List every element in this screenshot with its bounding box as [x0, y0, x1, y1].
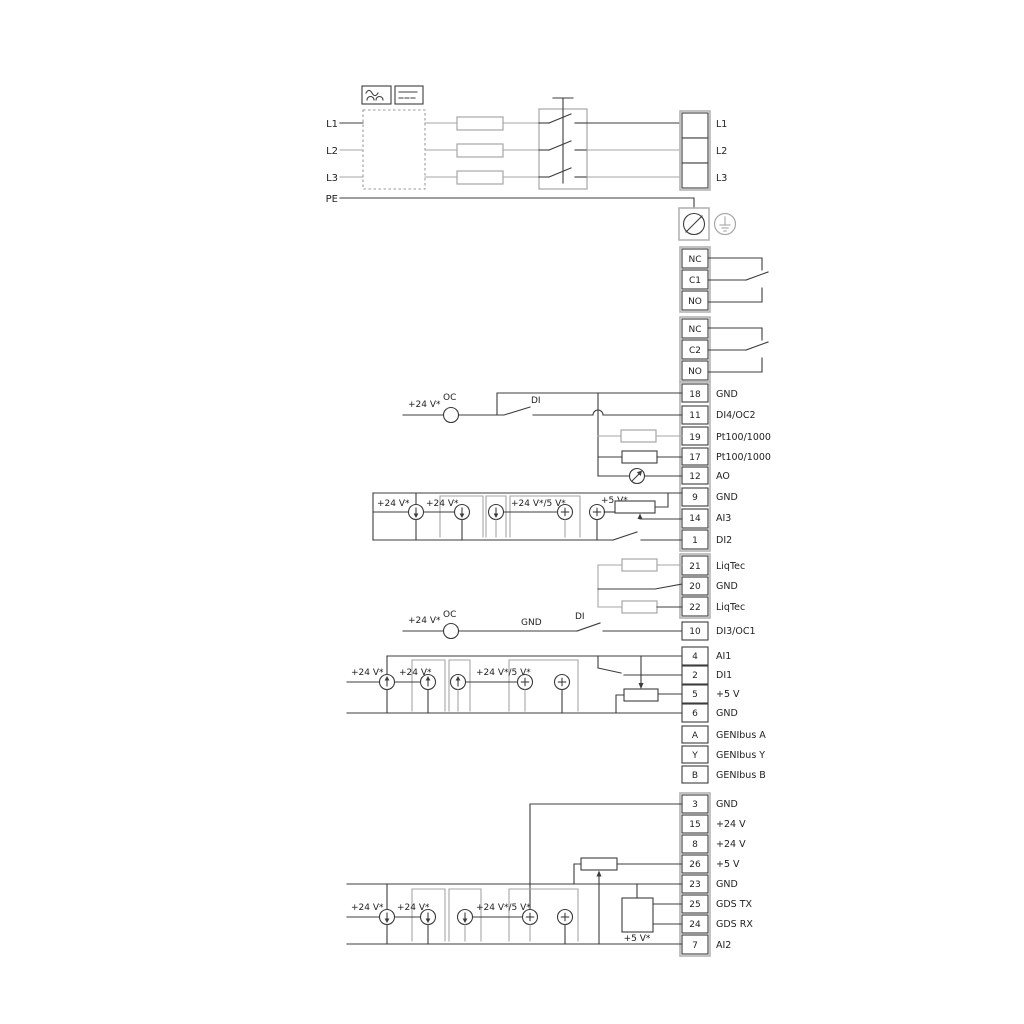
terminal-9: 9	[692, 493, 698, 503]
terminal-7-label: AI2	[716, 940, 731, 951]
gnd18-wire	[497, 393, 682, 415]
output-label-l3: L3	[716, 173, 727, 184]
terminal-20: 20	[689, 582, 701, 592]
relay2-c2: C2	[689, 346, 701, 356]
pt100-resistor-icon	[622, 451, 657, 463]
di-label: DI	[575, 612, 585, 622]
terminal-21-label: LiqTec	[716, 561, 745, 572]
current-source-icon	[451, 675, 466, 690]
plus24-label: +24 V*	[408, 616, 441, 626]
terminal-15-label: +24 V	[716, 819, 746, 830]
terminal-12: 12	[689, 472, 700, 482]
terminal-26: 26	[689, 860, 701, 870]
terminal-21: 21	[689, 562, 700, 572]
terminal-19-label: Pt100/1000	[716, 432, 771, 443]
oc-label: OC	[443, 610, 456, 620]
terminal-25-label: GDS TX	[716, 899, 753, 910]
terminal-box	[682, 113, 708, 138]
plus24-label: +24 V*	[351, 668, 384, 678]
liqtec-sensor-icon	[622, 559, 657, 571]
io-group2: 10DI3/OC1 4AI1 2DI1 5+5 V 6GND	[682, 622, 756, 722]
terminal-box	[682, 163, 708, 188]
relay1-no-wire	[708, 288, 762, 302]
earth-ground-icon	[715, 214, 736, 235]
wire-pe	[340, 198, 694, 213]
terminal-24: 24	[689, 920, 701, 930]
ai1-sensor-wiring: +24 V* +24 V* +24 V*/5 V*	[347, 656, 682, 713]
current-source-icon	[380, 675, 395, 690]
terminal-23-label: GND	[716, 879, 738, 890]
pe-screw-terminal-icon	[679, 208, 709, 240]
plus24-label: +24 V*	[377, 499, 410, 509]
di2-switch-icon	[613, 532, 637, 540]
input-label-pe: PE	[326, 194, 338, 205]
terminal-6-label: GND	[716, 708, 738, 719]
fuse-l3-icon	[457, 171, 503, 184]
terminal-25: 25	[689, 900, 700, 910]
liqtec-group: 21LiqTec 20GND 22LiqTec	[598, 554, 745, 618]
dc-symbol-icon	[395, 86, 423, 104]
relay2-no: NO	[688, 367, 702, 377]
current-source-icon	[380, 910, 395, 925]
terminal-8-label: +24 V	[716, 839, 746, 850]
power-section: L1 L2 L3 PE L1 L	[326, 86, 736, 240]
open-collector-icon	[444, 624, 459, 639]
di-switch-icon	[504, 407, 530, 415]
input-label-l2: L2	[326, 146, 338, 157]
terminal-3-label: GND	[716, 799, 738, 810]
terminal-y: Y	[691, 751, 698, 761]
fuse-l2-icon	[457, 144, 503, 157]
terminal-a: A	[692, 731, 699, 741]
io-group1: 18GND 11DI4/OC2 19Pt100/1000 17Pt100/100…	[680, 382, 771, 551]
terminal-22-label: LiqTec	[716, 602, 745, 613]
terminal-5: 5	[692, 690, 698, 700]
fuse-l1-icon	[457, 117, 503, 130]
relay2-no-wire	[708, 358, 762, 372]
di4-wire	[533, 410, 682, 415]
terminal-15: 15	[689, 820, 700, 830]
relay2-nc-wire	[708, 328, 762, 340]
terminal-18-label: GND	[716, 389, 738, 400]
terminal-8: 8	[692, 840, 698, 850]
plus24-label: +24 V*	[408, 400, 441, 410]
current-source-icon	[409, 505, 424, 520]
ac-symbol-icon	[362, 86, 391, 104]
terminal-17: 17	[689, 453, 700, 463]
plus-source-icon	[555, 675, 570, 690]
relay1-nc: NC	[688, 255, 701, 265]
terminal-7: 7	[692, 941, 698, 951]
di1-switch-icon	[598, 668, 621, 673]
plus-source-icon	[523, 910, 538, 925]
pt100-resistor-icon	[621, 430, 656, 442]
terminal-11-label: DI4/OC2	[716, 410, 756, 421]
terminal-26-label: +5 V	[716, 859, 740, 870]
di4-oc2-wiring: +24 V* OC DI	[403, 393, 682, 484]
relay1-nc-wire	[708, 258, 762, 270]
terminal-2: 2	[692, 671, 698, 681]
relay1-block: NC C1 NO	[680, 247, 768, 312]
terminal-17-label: Pt100/1000	[716, 452, 771, 463]
genibus-group: AGENIbus A YGENIbus Y BGENIbus B	[682, 726, 766, 783]
relay2-block: NC C2 NO	[680, 317, 768, 382]
terminal-14: 14	[689, 514, 701, 524]
relay1-contact-icon	[746, 272, 768, 280]
liqtec-gnd-wire	[598, 584, 682, 589]
disconnect-switch-icon	[539, 98, 587, 189]
terminal-12-label: AO	[716, 471, 730, 482]
plus-source-icon	[558, 910, 573, 925]
plus24-label: +24 V*	[351, 903, 384, 913]
terminal-box	[682, 138, 708, 163]
terminal-2-label: DI1	[716, 670, 732, 681]
terminal-b: B	[692, 771, 698, 781]
terminal-10: 10	[689, 627, 701, 637]
terminal-9-label: GND	[716, 492, 738, 503]
terminal-4-label: AI1	[716, 651, 731, 662]
terminal-3: 3	[692, 800, 698, 810]
wiring-diagram-canvas: L1 L2 L3 PE L1 L	[0, 0, 1024, 1024]
io-group3: 3GND 15+24 V 8+24 V 26+5 V 23GND 25GDS T…	[680, 793, 753, 956]
relay1-c1: C1	[689, 276, 701, 286]
terminal-23: 23	[689, 880, 700, 890]
oc-label: OC	[443, 393, 456, 403]
terminal-b-label: GENIbus B	[716, 770, 766, 781]
current-source-icon	[489, 505, 504, 520]
liqtec-sensor-icon	[622, 601, 657, 613]
converter-box	[363, 110, 425, 189]
output-label-l1: L1	[716, 119, 727, 130]
gnd3-wire	[530, 804, 682, 909]
input-label-l1: L1	[326, 119, 338, 130]
potentiometer-icon	[616, 656, 682, 713]
plus-source-icon	[558, 505, 573, 520]
input-label-l3: L3	[326, 173, 338, 184]
gnd-label: GND	[521, 618, 542, 628]
gds-sensor-module: +5 V*	[622, 884, 682, 944]
ai3-sensor-wiring: +24 V* +24 V* +24 V*/5 V* +5 V*	[373, 493, 682, 540]
terminal-11: 11	[689, 411, 700, 421]
di-switch-icon	[577, 623, 600, 631]
plus5-label: +5 V*	[624, 934, 651, 944]
plus24-5-label: +24 V*/5 V*	[476, 903, 531, 913]
current-source-icon	[421, 910, 436, 925]
current-source-icon	[455, 505, 470, 520]
output-label-l2: L2	[716, 146, 727, 157]
terminal-22: 22	[689, 603, 700, 613]
terminal-5-label: +5 V	[716, 689, 740, 700]
terminal-a-label: GENIbus A	[716, 730, 766, 741]
di-label: DI	[531, 396, 541, 406]
terminal-24-label: GDS RX	[716, 919, 753, 930]
wiring-diagram: L1 L2 L3 PE L1 L	[0, 0, 1024, 1024]
terminal-1: 1	[692, 536, 698, 546]
relay2-nc: NC	[688, 325, 701, 335]
plus24-label: +24 V*	[426, 499, 459, 509]
current-source-icon	[421, 675, 436, 690]
terminal-y-label: GENIbus Y	[716, 750, 765, 761]
terminal-18: 18	[689, 390, 701, 400]
di3-oc1-wiring: +24 V* OC GND DI	[403, 610, 682, 639]
relay2-contact-icon	[746, 342, 768, 350]
relay1-no: NO	[688, 297, 702, 307]
terminal-10-label: DI3/OC1	[716, 626, 756, 637]
terminal-19: 19	[689, 433, 701, 443]
terminal-1-label: DI2	[716, 535, 732, 546]
terminal-4: 4	[692, 652, 698, 662]
plus24-5-label: +24 V*/5 V*	[511, 499, 566, 509]
terminal-14-label: AI3	[716, 513, 731, 524]
plus-source-icon	[590, 505, 605, 520]
terminal-6: 6	[692, 709, 698, 719]
ai2-gds-wiring: +24 V* +24 V* +24 V*/5 V* +5 V*	[347, 804, 682, 944]
plus-source-icon	[518, 675, 533, 690]
current-source-icon	[458, 910, 473, 925]
open-collector-icon	[444, 408, 459, 423]
analog-output-meter-icon	[630, 469, 645, 484]
terminal-20-label: GND	[716, 581, 738, 592]
